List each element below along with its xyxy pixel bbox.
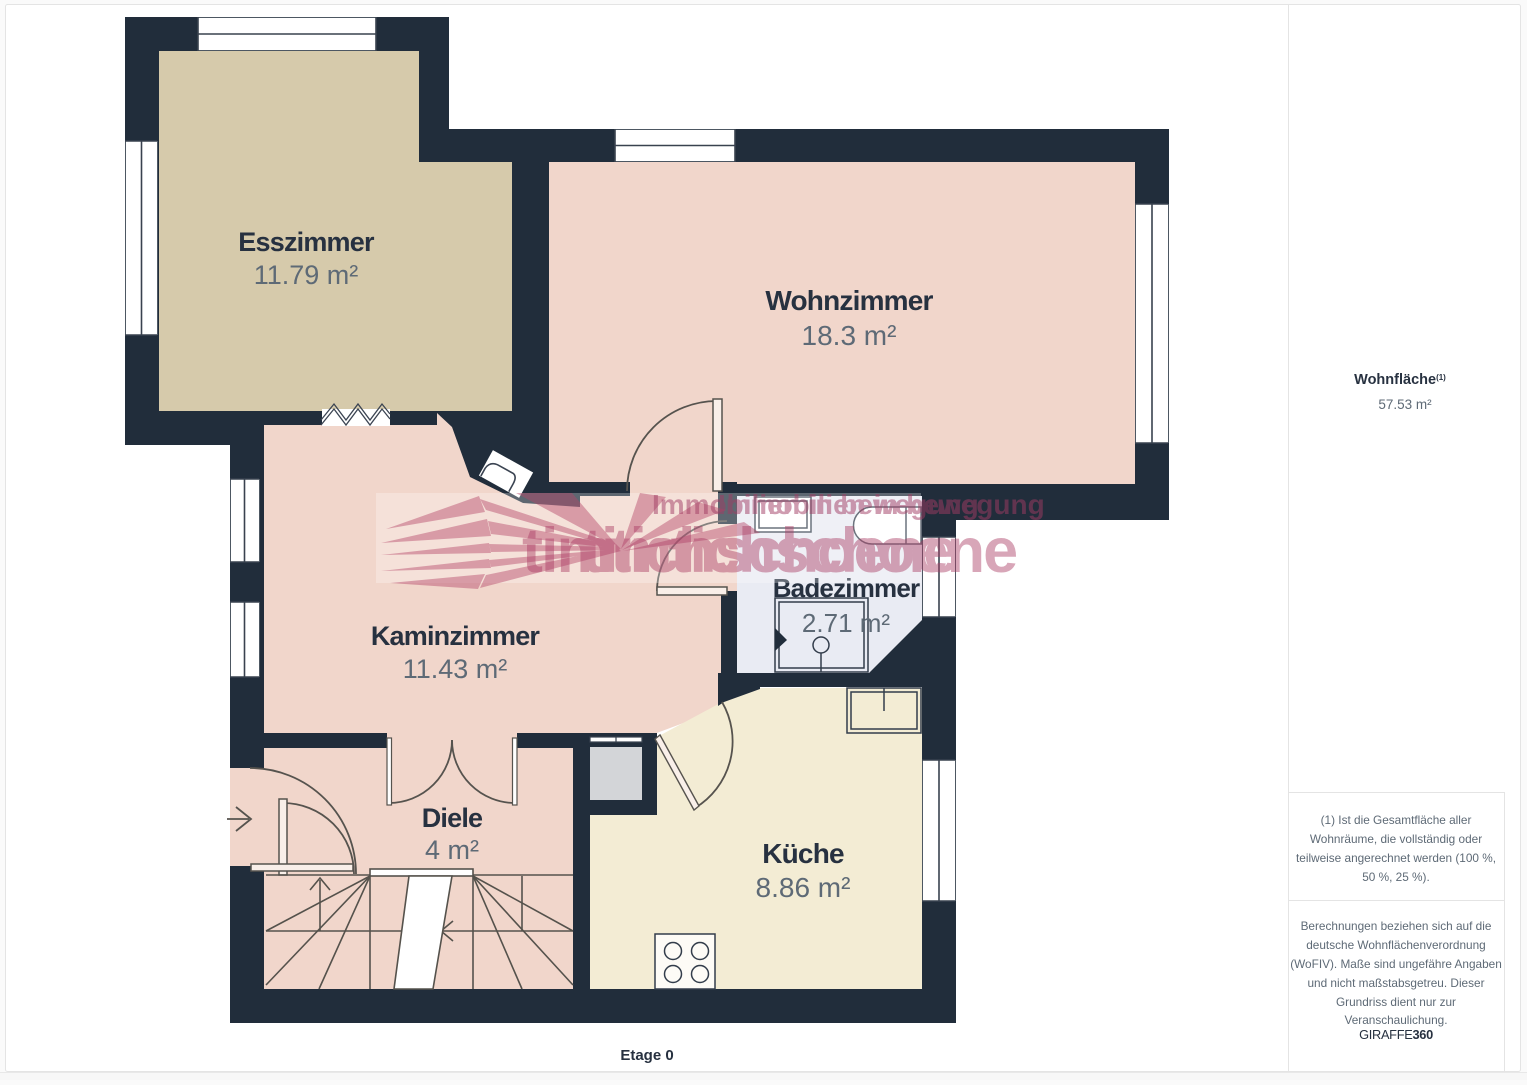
svg-text:(1) Ist die Gesamtfläche aller: (1) Ist die Gesamtfläche aller bbox=[1321, 813, 1472, 827]
svg-text:4 m²: 4 m² bbox=[425, 835, 479, 865]
svg-text:8.86 m²: 8.86 m² bbox=[756, 872, 851, 903]
svg-text:GIRAFFE360: GIRAFFE360 bbox=[1359, 1027, 1433, 1042]
svg-text:Berechnungen beziehen sich auf: Berechnungen beziehen sich auf die bbox=[1301, 919, 1492, 933]
svg-text:Kaminzimmer: Kaminzimmer bbox=[371, 621, 541, 651]
svg-text:Küche: Küche bbox=[762, 838, 844, 869]
svg-text:Wohnfläche(1): Wohnfläche(1) bbox=[1354, 372, 1446, 388]
svg-text:Wohnräume, die vollständig ode: Wohnräume, die vollständig oder bbox=[1310, 832, 1482, 846]
svg-text:Diele: Diele bbox=[422, 803, 483, 833]
svg-text:11.79 m²: 11.79 m² bbox=[254, 260, 359, 290]
svg-text:57.53 m²: 57.53 m² bbox=[1378, 397, 1432, 412]
svg-text:Grundriss dient nur zur: Grundriss dient nur zur bbox=[1336, 995, 1456, 1009]
svg-text:deutsche Wohnflächenverordnung: deutsche Wohnflächenverordnung bbox=[1306, 938, 1485, 952]
svg-text:Etage 0: Etage 0 bbox=[620, 1047, 673, 1064]
svg-text:18.3 m²: 18.3 m² bbox=[802, 320, 897, 351]
svg-text:teilweise angerechnet werden (: teilweise angerechnet werden (100 %, bbox=[1296, 851, 1496, 865]
svg-text:timtichschoene: timtichschoene bbox=[582, 516, 1016, 586]
svg-text:2.71 m²: 2.71 m² bbox=[802, 608, 890, 638]
svg-text:Veranschaulichung.: Veranschaulichung. bbox=[1345, 1013, 1448, 1027]
svg-text:und nicht maßstabsgetreu. Dies: und nicht maßstabsgetreu. Dieser bbox=[1307, 976, 1484, 990]
svg-text:Wohnzimmer: Wohnzimmer bbox=[765, 285, 933, 316]
svg-text:(WoFIV). Maße sind ungefähre A: (WoFIV). Maße sind ungefähre Angaben bbox=[1290, 957, 1502, 971]
svg-text:Esszimmer: Esszimmer bbox=[238, 227, 375, 257]
svg-text:50 %, 25 %).: 50 %, 25 %). bbox=[1362, 870, 1430, 884]
svg-text:11.43 m²: 11.43 m² bbox=[403, 654, 508, 684]
